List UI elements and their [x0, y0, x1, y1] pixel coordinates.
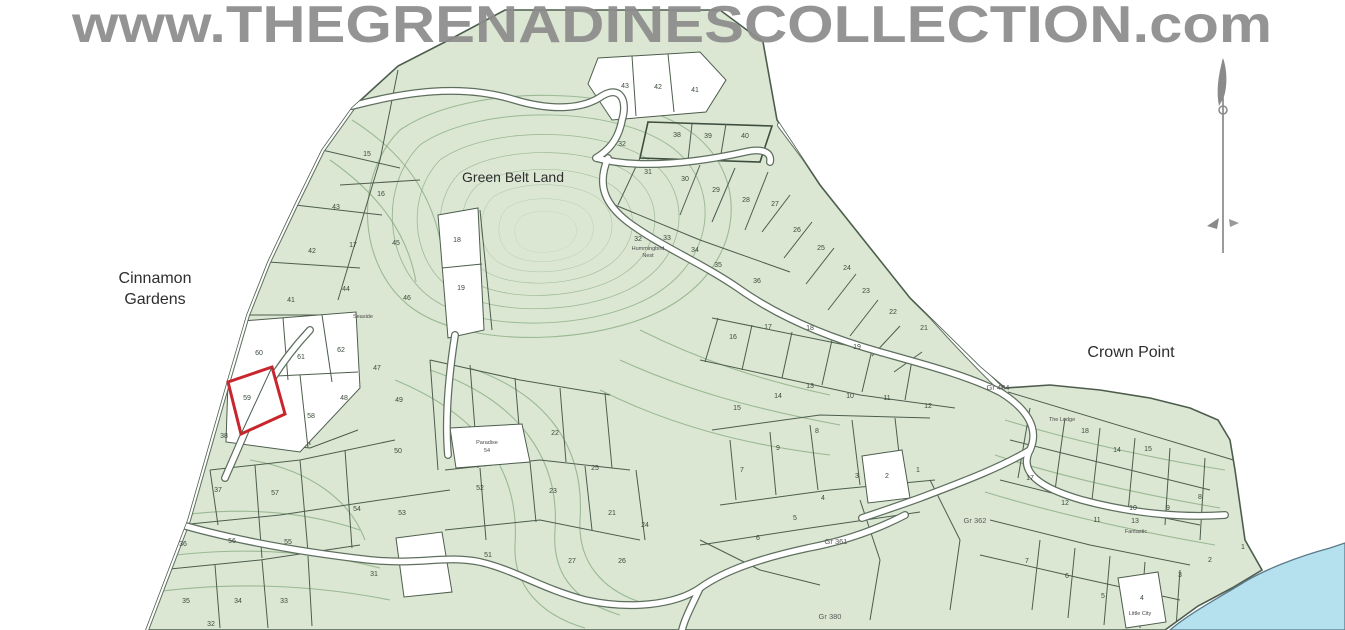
- plot-number: 19: [457, 285, 465, 292]
- plot-number: 51: [484, 552, 492, 559]
- micro-label: Hummingbird: [632, 246, 665, 252]
- plot-number: 16: [377, 191, 385, 198]
- plot-number: 17: [349, 242, 357, 249]
- plot-number: 6: [756, 535, 760, 542]
- plot-number: 37: [214, 487, 222, 494]
- plot-number: 12: [1061, 500, 1069, 507]
- plot-number: 22: [889, 309, 897, 316]
- plot-number: 47: [373, 365, 381, 372]
- plot-number: 32: [207, 621, 215, 628]
- plot-number: 15: [363, 151, 371, 158]
- micro-label: The Lodge: [1049, 417, 1075, 423]
- plot-number: 26: [618, 558, 626, 565]
- plot-number: 5: [793, 515, 797, 522]
- plot-number: 4: [821, 495, 825, 502]
- plot-number: 44: [342, 286, 350, 293]
- plot-number: 32: [634, 236, 642, 243]
- area-label: Green Belt Land: [462, 169, 564, 185]
- plot-number: 24: [843, 265, 851, 272]
- plot-number: 39: [704, 133, 712, 140]
- plot-number: 29: [712, 187, 720, 194]
- plot-number: 24: [641, 522, 649, 529]
- plot-number: 38: [220, 433, 228, 440]
- plot-number: 1: [1241, 544, 1245, 551]
- plot-number: 9: [1166, 505, 1170, 512]
- plot-number: 33: [663, 235, 671, 242]
- map-page: 1516431742451844411946474849506061625958…: [0, 0, 1345, 630]
- plot-number: 53: [398, 510, 406, 517]
- plot-number: 61: [297, 354, 305, 361]
- plot-number: 16: [729, 334, 737, 341]
- plot-number: 21: [608, 510, 616, 517]
- plot-number: 48: [340, 395, 348, 402]
- survey-ref: Gr 380: [819, 612, 842, 621]
- plot-number: 49: [395, 397, 403, 404]
- plot-number: 60: [255, 350, 263, 357]
- plot-number: 54: [353, 506, 361, 513]
- area-label: Gardens: [124, 291, 185, 308]
- plot-number: 33: [280, 598, 288, 605]
- plot-number: 11: [883, 395, 890, 402]
- plot-number: 31: [644, 169, 652, 176]
- plot-number: 38: [673, 132, 681, 139]
- plot-number: 42: [308, 248, 316, 255]
- cadastral-map: 1516431742451844411946474849506061625958…: [0, 0, 1345, 630]
- plot-number: 35: [714, 262, 722, 269]
- plot-number: 7: [1025, 558, 1029, 565]
- area-label: Cinnamon: [119, 270, 192, 287]
- survey-ref: Gr 362: [964, 516, 987, 525]
- plot-number: 13: [1131, 518, 1139, 525]
- plot-number: 3: [855, 473, 859, 480]
- plot-number: 21: [920, 325, 928, 332]
- plot-number: 59: [243, 395, 251, 402]
- micro-label: Nest: [642, 253, 654, 259]
- plot-number: 18: [806, 325, 814, 332]
- plot-number: 19: [853, 344, 861, 351]
- plot-number: 27: [771, 201, 779, 208]
- plot-number: 9: [776, 445, 780, 452]
- plot-number: 36: [179, 541, 187, 548]
- north-arrow-icon: [1207, 58, 1239, 253]
- plot-number: 8: [815, 428, 819, 435]
- area-label: Crown Point: [1087, 344, 1175, 361]
- plot-number: 5: [1101, 593, 1105, 600]
- plot-number: 17: [764, 324, 772, 331]
- plot-number: 57: [271, 490, 279, 497]
- plot-number: 7: [740, 467, 744, 474]
- plot-number: 62: [337, 347, 345, 354]
- survey-ref: Gr 361: [825, 537, 848, 546]
- plot-number: 55: [284, 539, 292, 546]
- micro-label: Seaside: [353, 314, 373, 320]
- plot-number: 27: [568, 558, 576, 565]
- plot-number: 17: [1026, 475, 1034, 482]
- plot-number: 25: [817, 245, 825, 252]
- plot-number: 4: [1140, 595, 1144, 602]
- plot-number: 35: [182, 598, 190, 605]
- plot-number: 2: [1208, 557, 1212, 564]
- plot-number: 14: [1113, 447, 1121, 454]
- micro-label: 54: [484, 448, 490, 454]
- plot-number: 25: [591, 465, 599, 472]
- watermark-text: www.THEGRENADINESCOLLECTION.com: [71, 0, 1272, 54]
- micro-label: Fantastic: [1125, 529, 1148, 535]
- plot-number: 41: [691, 87, 699, 94]
- plot-number: 13: [806, 383, 814, 390]
- plot-number: 32: [618, 141, 626, 148]
- micro-label: Little City: [1129, 611, 1152, 617]
- plot-number: 11: [1093, 517, 1100, 524]
- plot-number: 14: [774, 393, 782, 400]
- plot-number: 43: [332, 204, 340, 211]
- micro-label: Paradise: [476, 440, 498, 446]
- plot-number: 52: [476, 485, 484, 492]
- plot-number: 56: [228, 538, 236, 545]
- plot-number: 46: [403, 295, 411, 302]
- plot-number: 22: [551, 430, 559, 437]
- plot-number: 28: [742, 197, 750, 204]
- plot-number: 12: [924, 403, 932, 410]
- plot-number: 58: [307, 413, 315, 420]
- plot-number: 8: [1198, 494, 1202, 501]
- plot-number: 43: [621, 83, 629, 90]
- plot-number: 10: [1129, 505, 1137, 512]
- plot-number: 50: [394, 448, 402, 455]
- plot-number: 23: [549, 488, 557, 495]
- plot-number: 1: [916, 467, 920, 474]
- plot-number: 10: [846, 393, 854, 400]
- plot-number: 26: [793, 227, 801, 234]
- survey-ref: Gr 404: [987, 383, 1010, 392]
- plot-number: 18: [1081, 428, 1089, 435]
- plot-number: 40: [741, 133, 749, 140]
- plot-number: 15: [1144, 446, 1152, 453]
- plot-number: 6: [1065, 573, 1069, 580]
- plot-number: 36: [753, 278, 761, 285]
- plot-number: 34: [234, 598, 242, 605]
- plot-number: 3: [1178, 572, 1182, 579]
- plot-number: 41: [287, 297, 295, 304]
- plot-number: 34: [691, 247, 699, 254]
- plot-number: 2: [885, 473, 889, 480]
- plot-number: 45: [392, 240, 400, 247]
- plot-number: 30: [681, 176, 689, 183]
- plot-number: 31: [370, 571, 378, 578]
- plot-number: 42: [654, 84, 662, 91]
- plot-number: 15: [733, 405, 741, 412]
- plot-number: 23: [862, 288, 870, 295]
- plot-number: 18: [453, 237, 461, 244]
